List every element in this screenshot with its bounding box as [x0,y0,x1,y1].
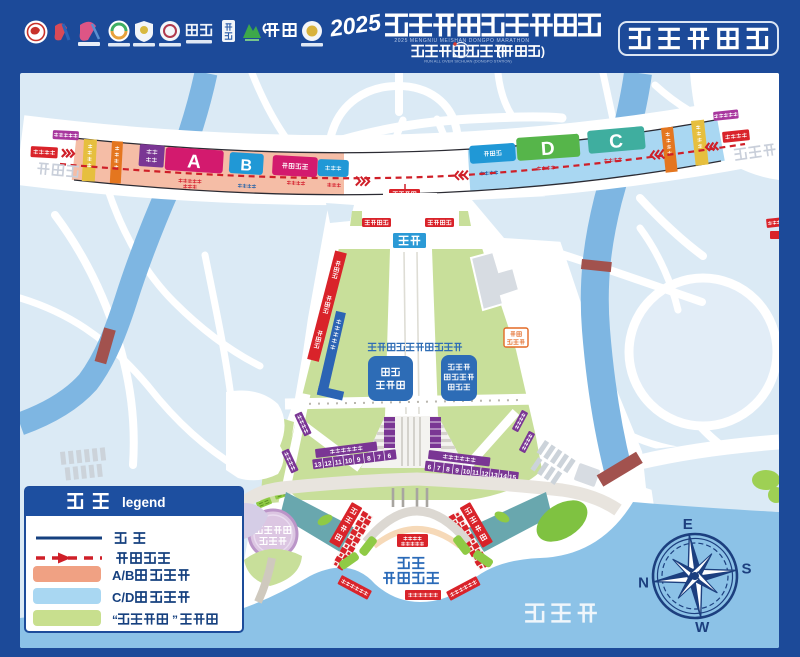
svg-text:13: 13 [314,461,322,469]
svg-text:legend: legend [122,495,166,510]
svg-text:A/B: A/B [112,568,134,583]
svg-text:S: S [741,560,751,577]
svg-text:11: 11 [335,459,343,467]
svg-text:E: E [683,516,693,533]
svg-text:10: 10 [462,468,470,476]
svg-text:(: ( [497,45,501,59]
svg-text:B: B [240,157,253,175]
svg-text:“: “ [112,613,118,627]
svg-text:12: 12 [324,460,332,468]
svg-text:N: N [638,575,649,592]
svg-text:C: C [608,131,624,153]
svg-text:D: D [540,138,555,160]
svg-text:RUN ALL OVER SICHUAN (DONGPO S: RUN ALL OVER SICHUAN (DONGPO STATION) [424,59,512,64]
svg-text:): ) [541,45,545,59]
svg-text:”: ” [172,613,178,627]
svg-text:W: W [695,619,710,636]
svg-text:10: 10 [345,458,353,466]
svg-text:C/D: C/D [112,590,134,605]
svg-text:A: A [187,151,202,173]
